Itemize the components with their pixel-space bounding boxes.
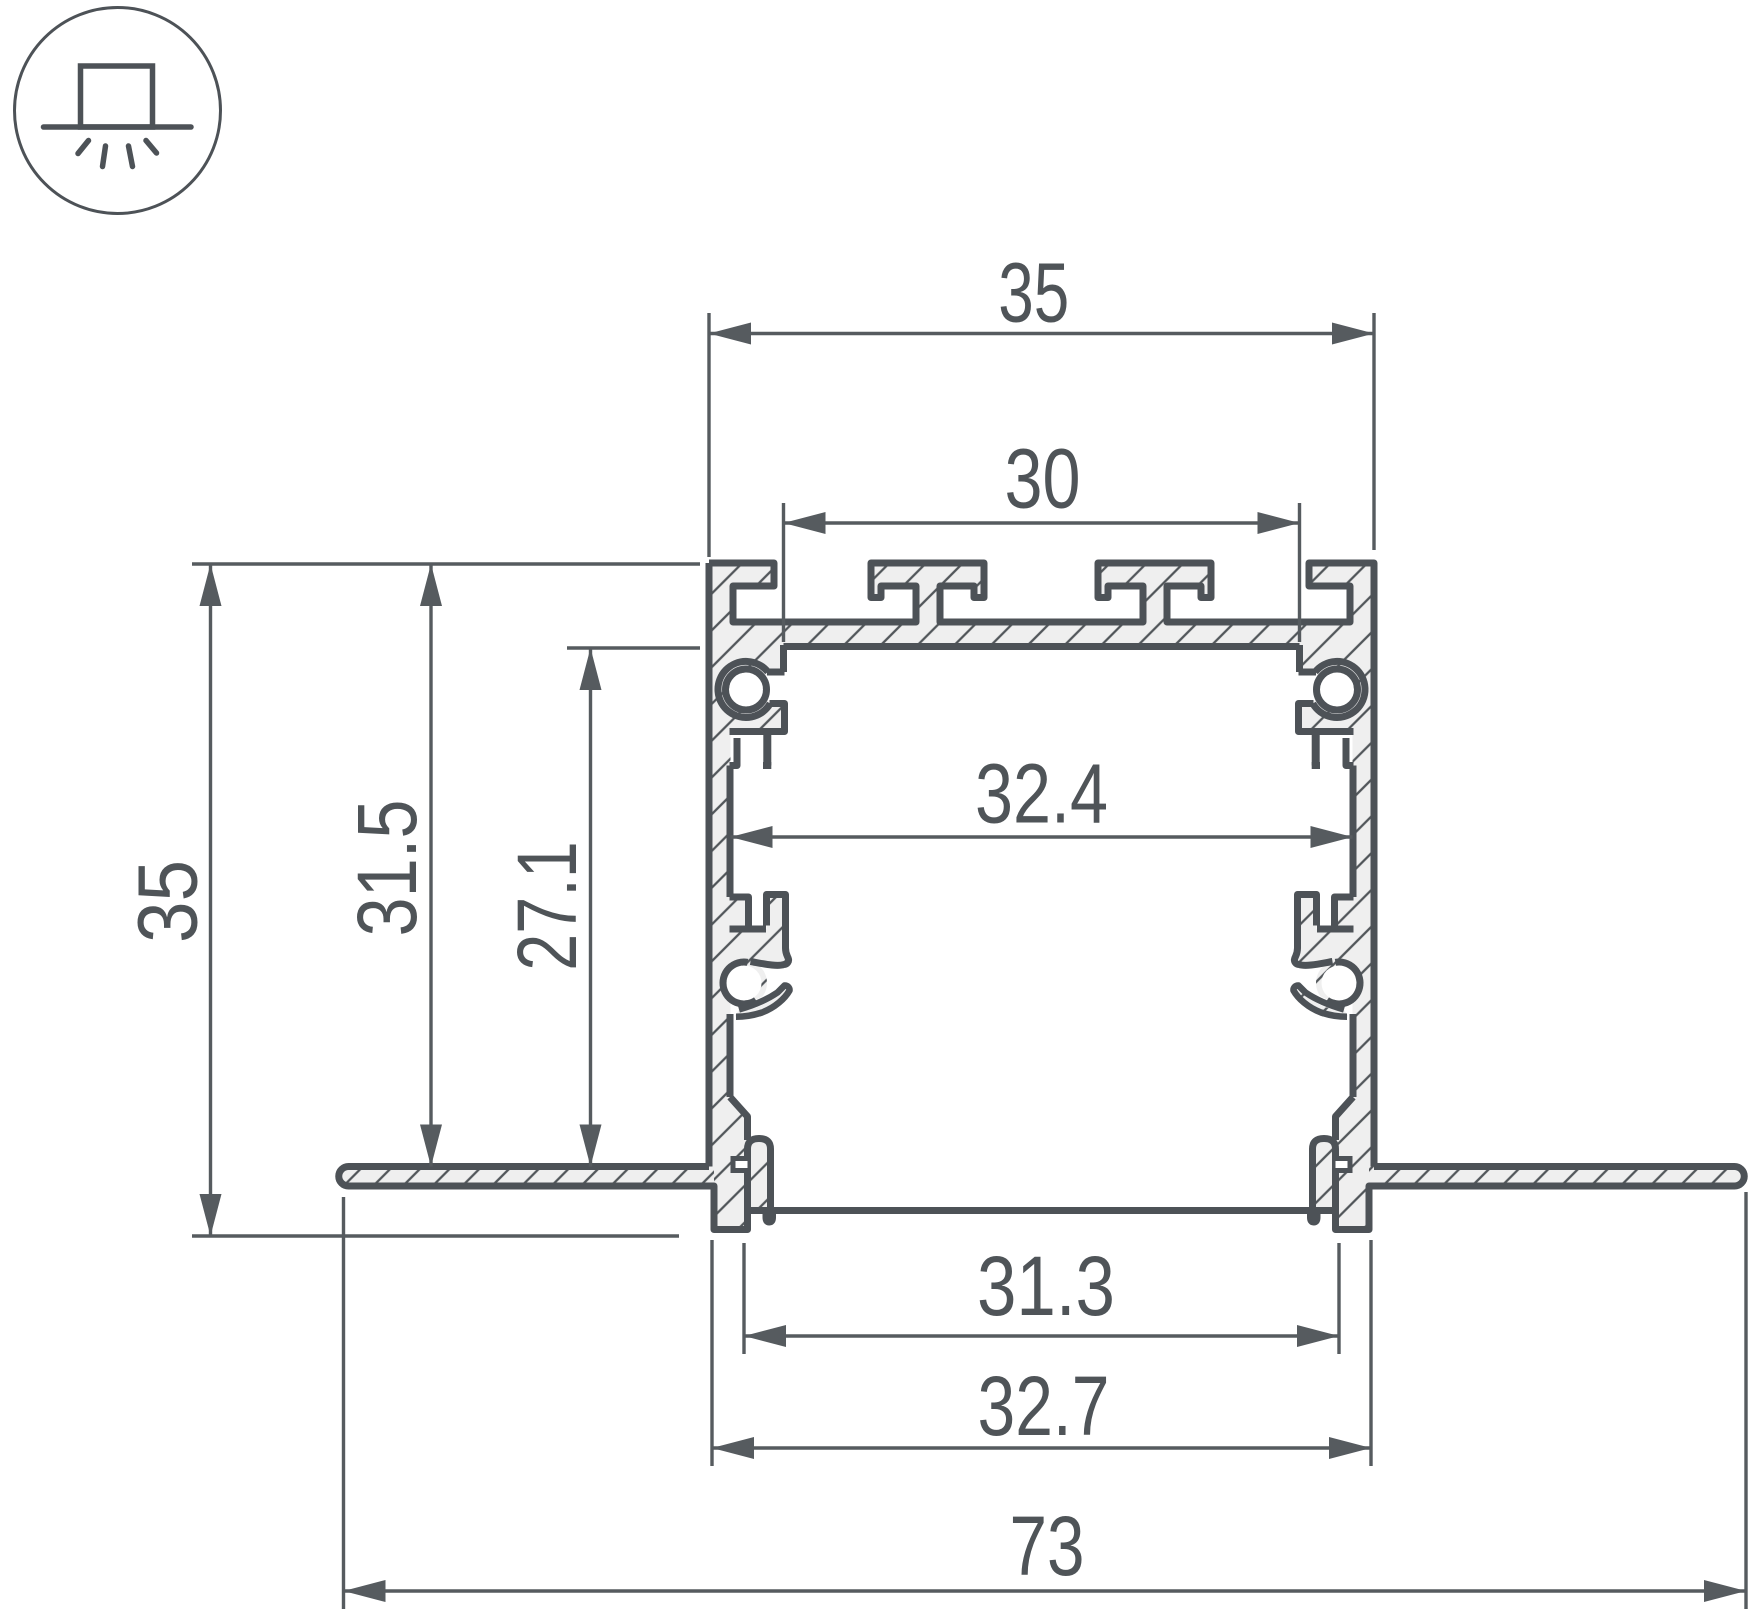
svg-text:30: 30 (1005, 432, 1081, 526)
svg-text:35: 35 (120, 860, 214, 943)
svg-text:32.7: 32.7 (978, 1359, 1110, 1453)
svg-text:27.1: 27.1 (500, 841, 594, 971)
svg-text:31.5: 31.5 (340, 800, 434, 937)
svg-text:73: 73 (1010, 1499, 1085, 1593)
svg-text:35: 35 (998, 245, 1069, 339)
svg-text:32.4: 32.4 (975, 747, 1108, 841)
svg-text:31.3: 31.3 (977, 1239, 1115, 1333)
